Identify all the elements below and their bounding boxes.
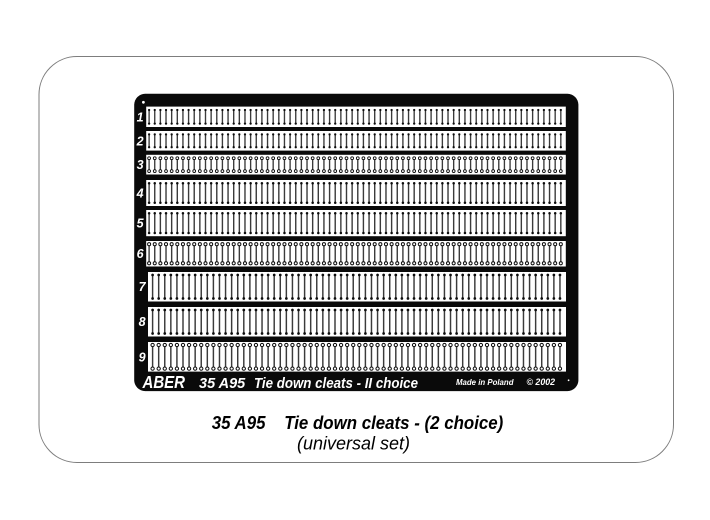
svg-text:7: 7 [139,280,147,294]
svg-text:8: 8 [139,315,146,329]
svg-text:(universal set): (universal set) [297,434,410,454]
svg-text:Made in Poland: Made in Poland [456,377,514,387]
svg-text:6: 6 [137,247,145,261]
svg-text:3: 3 [137,158,144,172]
svg-text:2: 2 [136,134,144,148]
svg-text:9: 9 [139,350,146,364]
svg-text:Tie down cleats - II choice: Tie down cleats - II choice [254,376,418,392]
svg-text:5: 5 [137,217,145,231]
svg-text:1: 1 [137,110,144,124]
svg-text:35 A95 Tie down cleats - (2: 35 A95 Tie down cleats - (2 choice) [212,413,504,433]
svg-text:4: 4 [136,187,144,201]
svg-text:© 2002: © 2002 [527,377,556,387]
svg-text:ABER: ABER [142,372,186,392]
svg-text:35 A95: 35 A95 [199,376,246,392]
